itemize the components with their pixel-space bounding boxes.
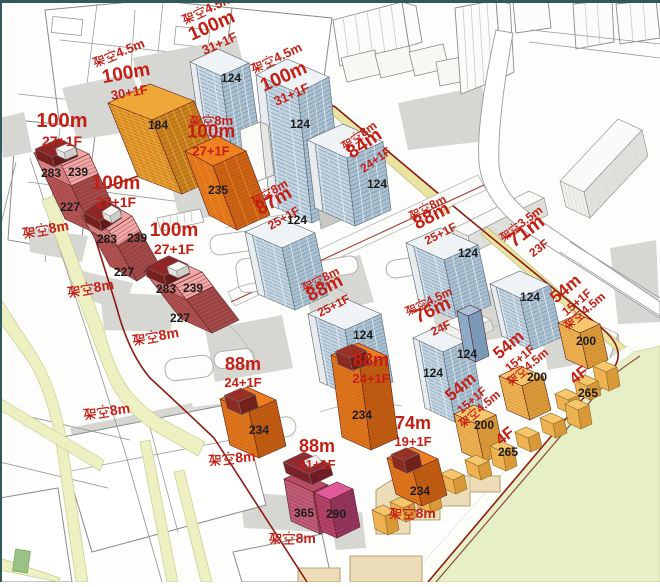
svg-text:124: 124	[423, 366, 443, 380]
svg-text:100m: 100m	[36, 110, 87, 132]
svg-text:239: 239	[183, 281, 203, 295]
svg-text:124: 124	[457, 347, 477, 361]
svg-text:124: 124	[367, 177, 387, 191]
svg-text:19+1F: 19+1F	[394, 434, 431, 449]
svg-text:265: 265	[498, 445, 518, 459]
svg-text:27+1F: 27+1F	[96, 194, 137, 210]
svg-text:227: 227	[170, 311, 190, 325]
svg-text:124: 124	[287, 213, 307, 227]
svg-text:239: 239	[127, 231, 147, 245]
svg-text:227: 227	[60, 200, 80, 214]
svg-text:234: 234	[410, 484, 430, 498]
svg-text:74m: 74m	[395, 413, 431, 433]
svg-text:184: 184	[148, 118, 168, 132]
svg-text:88m: 88m	[299, 436, 335, 456]
svg-text:100m: 100m	[150, 220, 199, 241]
svg-text:8m: 8m	[234, 448, 256, 466]
svg-text:235: 235	[208, 183, 228, 197]
svg-text:283: 283	[97, 232, 117, 246]
svg-text:100m: 100m	[92, 173, 141, 194]
svg-text:27+1F: 27+1F	[192, 143, 229, 158]
svg-text:200: 200	[576, 334, 596, 348]
svg-text:27+1F: 27+1F	[154, 241, 195, 257]
svg-text:8m: 8m	[109, 400, 131, 419]
svg-text:200: 200	[474, 418, 494, 432]
svg-text:365: 365	[294, 506, 314, 520]
svg-text:239: 239	[68, 165, 88, 179]
svg-text:234: 234	[352, 408, 372, 422]
svg-text:24+1F: 24+1F	[352, 371, 389, 386]
svg-text:124: 124	[520, 290, 540, 304]
svg-text:200: 200	[527, 370, 547, 384]
svg-text:100m: 100m	[187, 121, 236, 142]
svg-text:290: 290	[326, 507, 346, 521]
svg-text:88m: 88m	[353, 350, 389, 370]
svg-text:124: 124	[290, 117, 310, 131]
svg-text:265: 265	[578, 386, 598, 400]
svg-text:8m: 8m	[296, 530, 316, 546]
svg-text:283: 283	[41, 166, 61, 180]
svg-text:24+1F: 24+1F	[224, 375, 261, 390]
svg-text:124: 124	[221, 71, 241, 85]
svg-text:27+1F: 27+1F	[42, 133, 83, 149]
svg-text:124: 124	[353, 328, 373, 342]
svg-text:283: 283	[156, 282, 176, 296]
svg-text:227: 227	[114, 265, 134, 279]
svg-text:234: 234	[249, 423, 269, 437]
svg-text:124: 124	[458, 246, 478, 260]
svg-text:88m: 88m	[225, 354, 261, 374]
svg-text:8m: 8m	[416, 505, 436, 521]
svg-text:21+1F: 21+1F	[298, 457, 335, 472]
